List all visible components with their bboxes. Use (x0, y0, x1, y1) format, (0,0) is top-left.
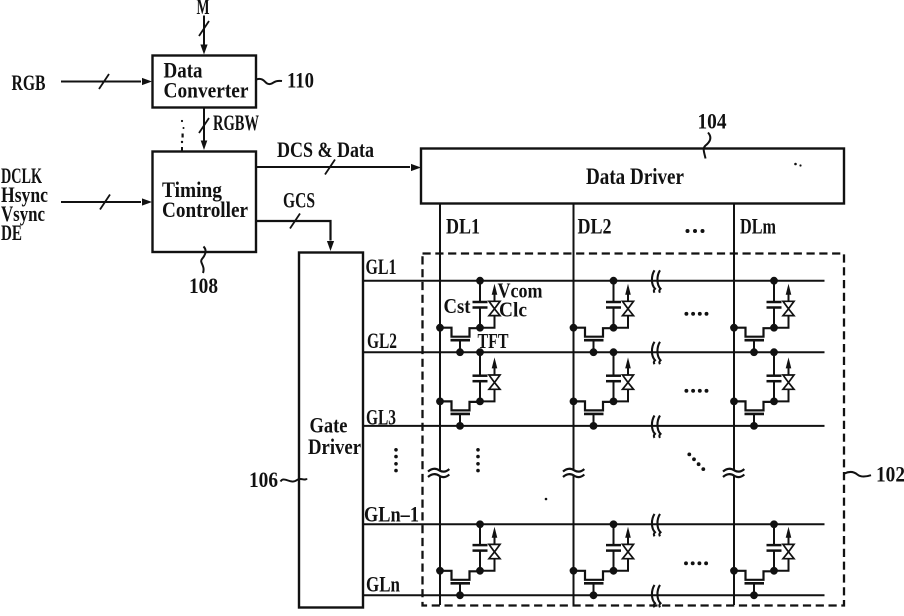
svg-text:RGB: RGB (12, 70, 46, 95)
svg-text:Converter: Converter (164, 78, 249, 103)
svg-text:GL1: GL1 (366, 254, 397, 279)
svg-text:110: 110 (287, 68, 314, 93)
svg-text:GCS: GCS (283, 188, 315, 213)
svg-text:Clc: Clc (499, 298, 527, 322)
svg-text:104: 104 (698, 109, 727, 134)
svg-text:RGBW: RGBW (213, 110, 259, 135)
svg-text:GL3: GL3 (366, 405, 396, 430)
svg-text:Cst: Cst (444, 294, 471, 318)
svg-text:108: 108 (189, 273, 218, 298)
svg-text:DCS & Data: DCS & Data (277, 137, 374, 162)
svg-text:DL2: DL2 (578, 214, 612, 239)
svg-text:GL2: GL2 (367, 328, 397, 353)
svg-text:GLn: GLn (366, 572, 400, 597)
svg-text:DLm: DLm (740, 214, 776, 239)
svg-text:DL1: DL1 (446, 214, 480, 239)
svg-text:GLn–1: GLn–1 (364, 502, 419, 527)
svg-text:Controller: Controller (162, 197, 248, 222)
svg-text:TFT: TFT (478, 329, 509, 353)
svg-text:102: 102 (876, 462, 904, 487)
svg-text:Driver: Driver (308, 434, 361, 459)
svg-text:Data Driver: Data Driver (586, 164, 684, 189)
svg-text:DE: DE (1, 220, 22, 245)
svg-text:106: 106 (249, 467, 278, 492)
